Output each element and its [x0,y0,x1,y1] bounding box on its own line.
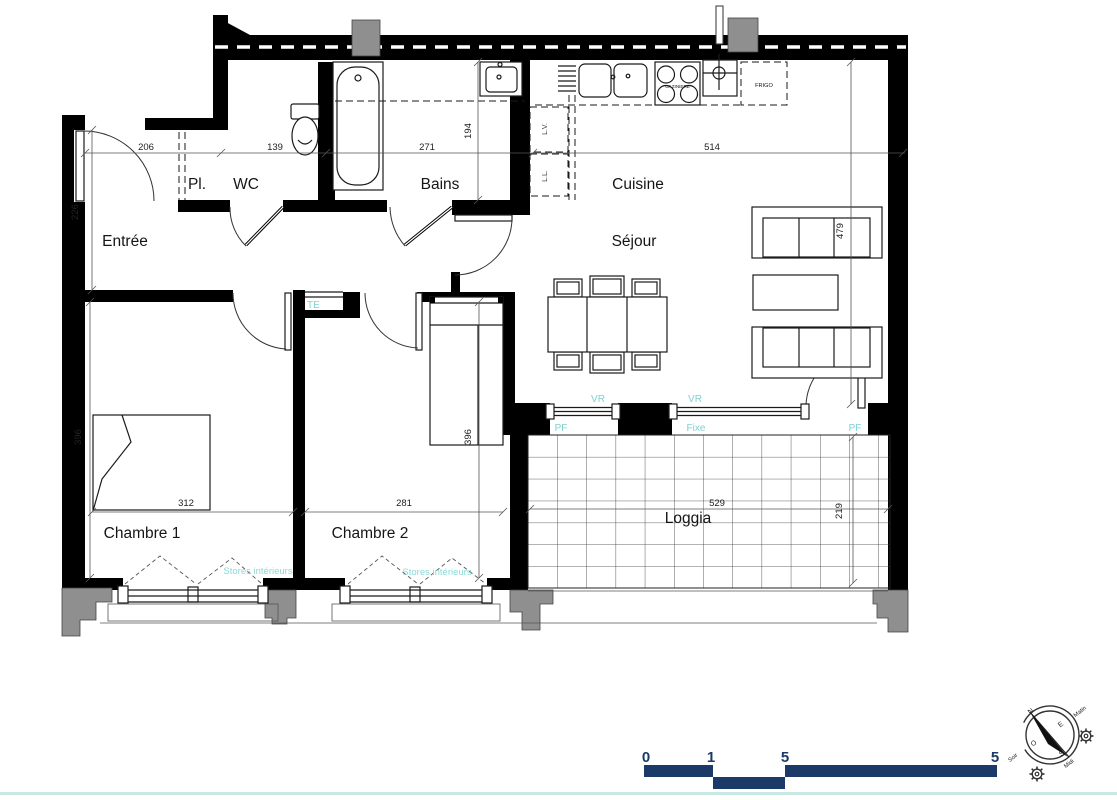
washing-machine-label: L.L. [542,170,549,182]
dim-226: 226 [70,204,81,220]
floor-plan-page: GAZINIERE FRIGO L.V. L.L. [0,0,1117,800]
room-label-chambre2: Chambre 2 [332,525,409,542]
compass-needle [1030,712,1068,757]
label-pf-2: PF [849,423,862,434]
room-label-loggia: Loggia [665,510,712,527]
coffee-table [753,275,838,310]
compass-matin: Matin [1073,705,1088,718]
fridge: FRIGO [741,62,787,105]
toilet [291,104,319,155]
compass-rose: N E O S Matin Soir Midi [1007,705,1093,781]
dim-479: 479 [835,223,846,239]
sofa-top [752,207,882,258]
electrical-panel [305,292,343,297]
dim-529: 529 [709,498,725,509]
gear-icon [1079,729,1094,744]
dishwasher: L.V. [530,107,568,152]
dim-219: 219 [834,503,845,519]
dim-139: 139 [267,142,283,153]
room-label-placard: Pl. [188,176,206,193]
room-label-chambre1: Chambre 1 [104,525,181,542]
dim-194: 194 [463,123,474,139]
compass-soir: Soir [1007,753,1019,764]
label-vr-1: VR [591,394,605,405]
label-stores-1: Stores intérieurs [223,566,292,577]
label-te: TE [307,300,320,311]
chambre2-door [365,293,422,350]
dishwasher-label: L.V. [542,123,549,135]
sejour-pf-window [546,404,620,419]
scale-1: 1 [707,749,715,766]
scale-0: 0 [642,749,650,766]
chambre2-window [332,556,500,621]
washbasin [480,62,522,96]
label-pf-1: PF [555,423,568,434]
sejour-fixed-window [669,404,809,419]
washing-machine: L.L. [530,154,568,196]
kitchen-small-sink [703,54,737,96]
floor-plan-drawing: GAZINIERE FRIGO L.V. L.L. [0,0,1117,800]
scale-5: 5 [991,749,999,766]
label-stores-2: Stores intérieurs [402,567,471,578]
kitchen-sink [558,64,647,97]
dim-396-chambre2: 396 [463,429,474,445]
label-vr-2: VR [688,394,702,405]
room-label-wc: WC [233,176,259,193]
dim-396-chambre1: 396 [73,429,84,445]
sofa-bottom [752,327,882,378]
stove-label: GAZINIERE [665,84,690,89]
closet-doors [179,132,185,200]
bed [93,415,210,511]
compass-e: E [1057,720,1065,729]
label-fixe: Fixe [687,423,706,434]
scale-bar: 0 1 5 5 [642,749,999,789]
dim-206: 206 [138,142,154,153]
bains-door [390,207,452,246]
stove-gaziniere: GAZINIERE [655,62,700,105]
compass-o: O [1030,739,1039,748]
room-label-entree: Entrée [102,233,148,250]
room-label-bains: Bains [421,176,460,193]
fridge-label: FRIGO [755,83,773,89]
room-label-cuisine: Cuisine [612,176,664,193]
dining-table [548,276,667,373]
gear-icon [1030,767,1045,782]
sejour-passage-door [455,215,512,275]
wardrobe [430,297,503,445]
dim-312: 312 [178,498,194,509]
scale-2: 5 [781,749,789,766]
chambre1-door [233,293,291,350]
dim-514: 514 [704,142,720,153]
footer-accent-line [0,792,1117,795]
dim-271: 271 [419,142,435,153]
bathtub [333,62,383,190]
room-label-sejour: Séjour [612,233,657,250]
wc-door [230,207,283,246]
dim-281: 281 [396,498,412,509]
